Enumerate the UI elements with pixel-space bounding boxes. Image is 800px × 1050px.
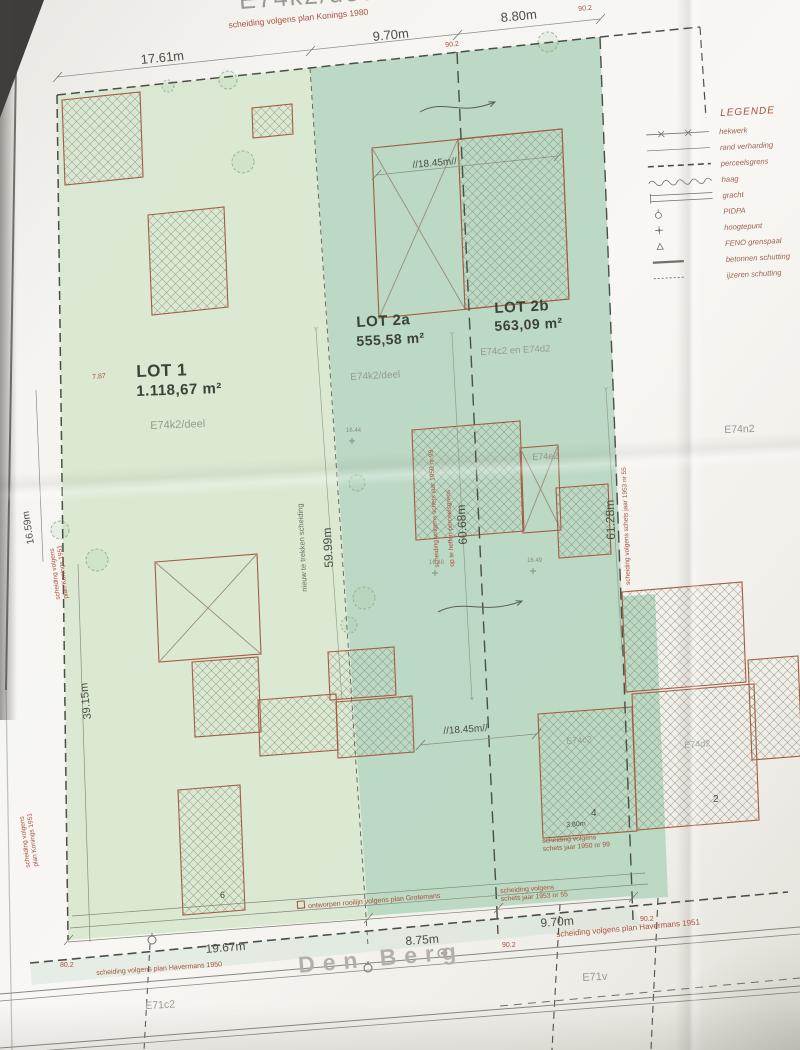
building-hatched (192, 657, 261, 737)
building-hatched (538, 707, 637, 838)
parcel-e74n2: E74n2 (724, 423, 755, 437)
building-number-4: 4 (591, 808, 597, 820)
building-hatched (336, 696, 414, 758)
dim-garage-width: 3.80m (566, 821, 586, 831)
dashed-line-icon (647, 158, 713, 171)
lot2a-area: 555,58 m² (356, 329, 425, 349)
legend-label: haag (721, 174, 738, 184)
legend-label: rand verharding (720, 140, 774, 152)
legend-label: perceelsgrens (721, 156, 769, 167)
lot2b-area: 563,09 m² (494, 314, 563, 334)
station-mark-icon: ⊙ (435, 943, 449, 962)
building-number-2: 2 (713, 794, 719, 806)
iron-fence-icon (652, 270, 718, 283)
building-hatched (252, 104, 293, 138)
boundary-post-icon (651, 238, 717, 251)
legend-label: betonnen schutting (726, 251, 791, 263)
building-hatched (258, 694, 338, 756)
note-line: scheiding volgens schets jaar 1950 nr 99 (428, 450, 442, 568)
concrete-fence-icon (652, 254, 718, 267)
elevation-mark: 16.49 (527, 558, 542, 565)
wavy-line-icon (647, 174, 713, 187)
scanned-cadastral-plan: E74k2/deel scheiding volgens plan Koning… (0, 0, 800, 1050)
note-line: op te heffen perceelsgrens (443, 449, 457, 567)
legend: LEGENDE hekwerk rand verharding perceels… (644, 104, 800, 287)
elevation-mark: 16.44 (346, 428, 361, 435)
scan-bottom-shadow (0, 1004, 800, 1050)
dim-depth-lot1: 59.99m (320, 527, 336, 568)
legend-label: hoogtepunt (724, 220, 762, 231)
scan-edge-shadow (0, 0, 20, 720)
dim-depth-lot2b: 61.28m (603, 499, 619, 540)
legend-label: ijzeren schutting (726, 268, 781, 280)
ditch-line-icon (648, 190, 714, 203)
building-hatched (148, 207, 228, 315)
building-hatched (458, 129, 569, 309)
legend-label: PIDPA (723, 205, 746, 215)
legend-label: gracht (722, 189, 744, 199)
pidpa-mark-icon (649, 206, 715, 219)
parcel-e74d2: E74d2 (684, 738, 711, 751)
building-hatched (748, 656, 800, 760)
building-number-6: 6 (220, 890, 225, 901)
checkbox-icon (297, 901, 306, 910)
angle-mark: 90.2 (502, 942, 516, 950)
building-hatched (178, 785, 245, 915)
lot1-area: 1.118,67 m² (136, 380, 222, 401)
thin-line-icon (646, 142, 712, 155)
angle-mark: 90.2 (578, 5, 592, 15)
elevation-mark: 16.48 (429, 560, 444, 567)
lot1-name: LOT 1 (136, 360, 187, 382)
angle-mark: 90.2 (445, 41, 459, 51)
building-hatched (62, 92, 143, 185)
legend-label: hekwerk (719, 125, 748, 135)
legend-label: FENO grenspaal (725, 235, 782, 247)
parcel-e74c2: E74c2 (566, 734, 592, 747)
parcel-e71c2: E71c2 (145, 998, 175, 1012)
parcel-e71v: E71v (582, 971, 608, 985)
lot1-parcel: E74k2/deel (150, 418, 205, 433)
parcel-e74e2: E74e2 (532, 451, 559, 463)
dim-left-offset: 7.87 (92, 373, 106, 383)
elevation-mark-icon (650, 222, 716, 235)
fence-line-icon (645, 127, 711, 140)
angle-mark: 80.2 (60, 962, 74, 970)
lot2a-name: LOT 2a (356, 311, 411, 332)
building-hatched (328, 647, 396, 700)
boundary-note-schets-1950: scheiding volgens schets jaar 1950 nr 99… (420, 448, 465, 568)
